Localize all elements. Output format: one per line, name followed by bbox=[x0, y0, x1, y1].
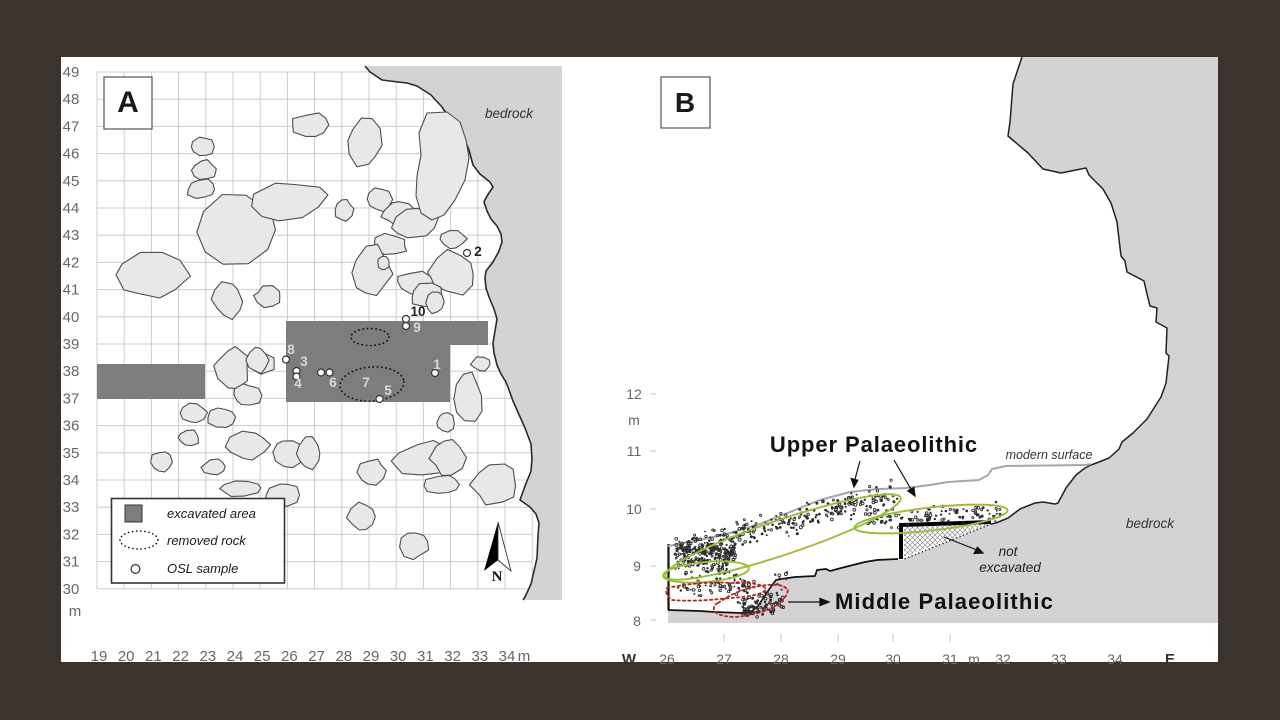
svg-text:30: 30 bbox=[390, 648, 407, 665]
svg-text:31: 31 bbox=[417, 648, 434, 665]
svg-text:39: 39 bbox=[63, 336, 80, 353]
svg-text:49: 49 bbox=[63, 64, 80, 81]
svg-text:26: 26 bbox=[659, 651, 675, 667]
svg-text:11: 11 bbox=[627, 443, 642, 459]
svg-text:m: m bbox=[69, 603, 82, 620]
svg-text:46: 46 bbox=[63, 146, 80, 163]
svg-text:20: 20 bbox=[118, 648, 135, 665]
svg-text:42: 42 bbox=[63, 254, 80, 271]
svg-text:34: 34 bbox=[1107, 651, 1123, 667]
svg-text:8: 8 bbox=[287, 342, 295, 357]
svg-text:27: 27 bbox=[308, 648, 325, 665]
svg-text:34: 34 bbox=[63, 472, 80, 489]
svg-text:m: m bbox=[628, 412, 640, 428]
svg-text:37: 37 bbox=[63, 390, 80, 407]
svg-text:29: 29 bbox=[830, 651, 846, 667]
svg-text:34: 34 bbox=[499, 648, 516, 665]
svg-text:E: E bbox=[1165, 651, 1175, 668]
svg-text:43: 43 bbox=[63, 227, 80, 244]
svg-text:24: 24 bbox=[227, 648, 244, 665]
svg-text:removed rock: removed rock bbox=[167, 533, 247, 548]
svg-text:1: 1 bbox=[433, 357, 441, 372]
svg-text:26: 26 bbox=[281, 648, 298, 665]
svg-text:excavated: excavated bbox=[979, 560, 1041, 575]
svg-text:10: 10 bbox=[410, 304, 425, 319]
svg-text:33: 33 bbox=[1051, 651, 1067, 667]
svg-text:31: 31 bbox=[63, 554, 80, 571]
svg-text:bedrock: bedrock bbox=[485, 106, 534, 121]
svg-text:32: 32 bbox=[995, 651, 1011, 667]
svg-text:A: A bbox=[117, 86, 139, 119]
svg-text:31: 31 bbox=[942, 651, 958, 667]
svg-text:3: 3 bbox=[300, 354, 308, 369]
svg-text:36: 36 bbox=[63, 418, 80, 435]
svg-text:B: B bbox=[675, 87, 695, 118]
svg-text:9: 9 bbox=[633, 558, 641, 574]
svg-text:41: 41 bbox=[63, 282, 80, 299]
svg-text:m: m bbox=[968, 651, 980, 667]
svg-text:OSL sample: OSL sample bbox=[167, 561, 238, 576]
svg-text:30: 30 bbox=[63, 581, 80, 598]
svg-text:32: 32 bbox=[63, 526, 80, 543]
svg-text:4: 4 bbox=[294, 376, 302, 391]
svg-text:6: 6 bbox=[329, 375, 337, 390]
svg-text:5: 5 bbox=[384, 383, 392, 398]
svg-text:40: 40 bbox=[63, 309, 80, 326]
svg-text:12: 12 bbox=[626, 386, 642, 402]
svg-text:2: 2 bbox=[474, 244, 482, 259]
svg-text:28: 28 bbox=[773, 651, 789, 667]
svg-text:m: m bbox=[518, 648, 531, 665]
svg-text:8: 8 bbox=[633, 613, 641, 629]
svg-text:9: 9 bbox=[413, 320, 421, 335]
svg-text:32: 32 bbox=[444, 648, 461, 665]
svg-text:19: 19 bbox=[91, 648, 108, 665]
svg-text:30: 30 bbox=[885, 651, 901, 667]
svg-text:21: 21 bbox=[145, 648, 162, 665]
svg-text:22: 22 bbox=[172, 648, 189, 665]
svg-text:33: 33 bbox=[63, 499, 80, 516]
svg-text:7: 7 bbox=[362, 375, 370, 390]
svg-text:25: 25 bbox=[254, 648, 271, 665]
svg-text:23: 23 bbox=[199, 648, 216, 665]
svg-text:48: 48 bbox=[63, 91, 80, 108]
svg-text:not: not bbox=[999, 544, 1019, 559]
svg-text:N: N bbox=[492, 569, 503, 585]
svg-text:38: 38 bbox=[63, 363, 80, 380]
svg-text:27: 27 bbox=[716, 651, 732, 667]
svg-text:44: 44 bbox=[63, 200, 80, 217]
svg-text:45: 45 bbox=[63, 173, 80, 190]
svg-text:excavated area: excavated area bbox=[167, 506, 256, 521]
svg-text:W: W bbox=[622, 651, 637, 668]
svg-text:29: 29 bbox=[363, 648, 380, 665]
svg-text:bedrock: bedrock bbox=[1126, 516, 1175, 531]
svg-text:47: 47 bbox=[63, 118, 80, 135]
svg-text:Upper Palaeolithic: Upper Palaeolithic bbox=[770, 432, 978, 457]
svg-text:35: 35 bbox=[63, 445, 80, 462]
svg-text:28: 28 bbox=[335, 648, 352, 665]
svg-text:10: 10 bbox=[626, 501, 642, 517]
svg-text:Middle Palaeolithic: Middle Palaeolithic bbox=[835, 589, 1054, 614]
svg-text:33: 33 bbox=[471, 648, 488, 665]
svg-text:modern surface: modern surface bbox=[1006, 448, 1093, 462]
